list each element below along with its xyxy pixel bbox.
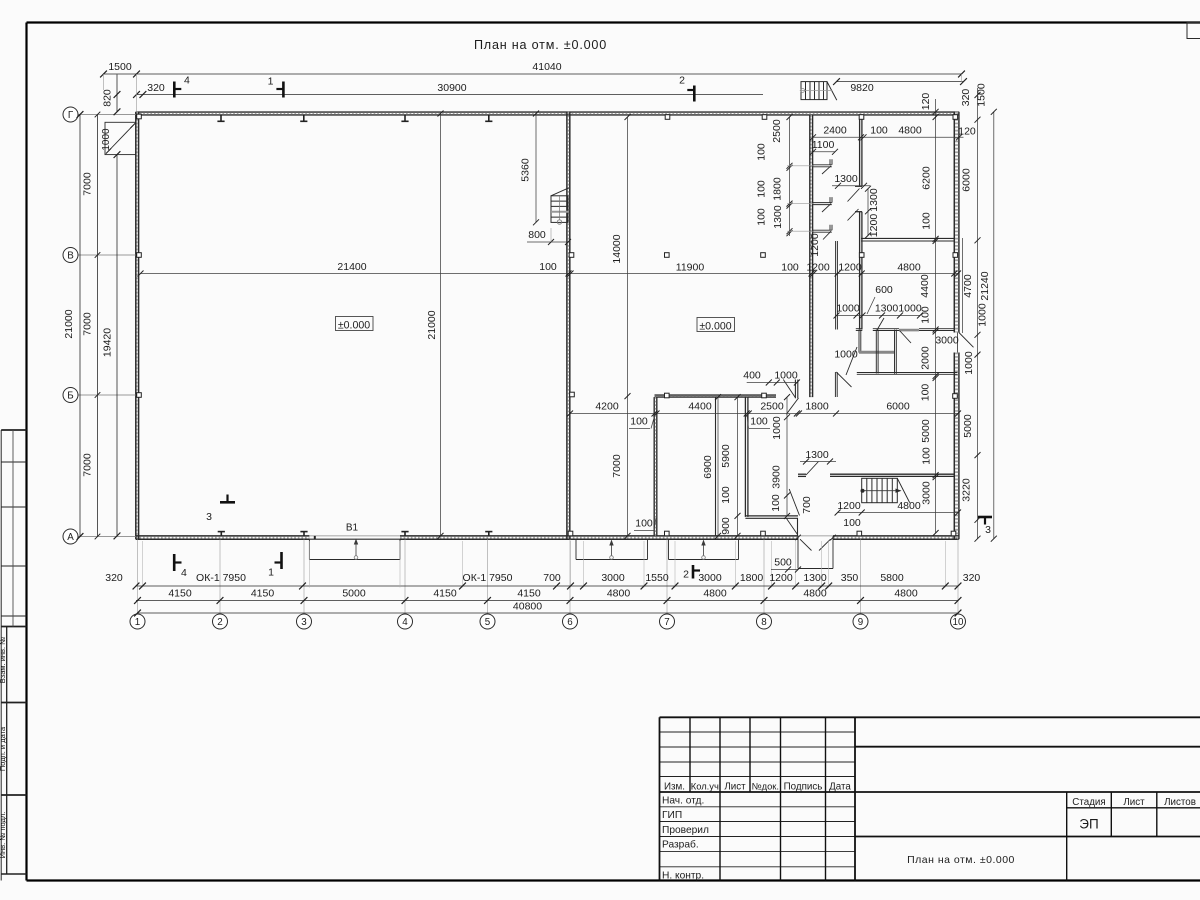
svg-text:1200: 1200 bbox=[838, 262, 862, 274]
svg-text:4: 4 bbox=[402, 617, 408, 628]
svg-text:2500: 2500 bbox=[771, 119, 783, 143]
svg-text:100: 100 bbox=[870, 124, 888, 136]
svg-text:6000: 6000 bbox=[886, 401, 910, 413]
svg-text:1200: 1200 bbox=[837, 500, 861, 512]
svg-text:100: 100 bbox=[781, 262, 799, 274]
svg-text:1000: 1000 bbox=[977, 303, 989, 327]
svg-text:Подпись: Подпись bbox=[784, 781, 823, 792]
svg-text:Дата: Дата bbox=[829, 781, 851, 792]
svg-text:4700: 4700 bbox=[962, 274, 974, 298]
svg-text:6000: 6000 bbox=[961, 168, 973, 192]
svg-text:3900: 3900 bbox=[771, 465, 783, 489]
svg-text:11900: 11900 bbox=[676, 262, 705, 274]
svg-text:1300: 1300 bbox=[803, 572, 827, 584]
svg-text:3220: 3220 bbox=[961, 478, 973, 502]
svg-text:320: 320 bbox=[960, 89, 972, 107]
svg-text:4800: 4800 bbox=[894, 588, 918, 600]
svg-text:ГИП: ГИП bbox=[662, 810, 682, 821]
svg-text:1300: 1300 bbox=[834, 173, 858, 185]
svg-text:Листов: Листов bbox=[1164, 797, 1196, 808]
svg-text:Взам. инв. №: Взам. инв. № bbox=[0, 637, 7, 683]
svg-text:3: 3 bbox=[301, 617, 307, 628]
svg-text:100: 100 bbox=[920, 384, 932, 402]
svg-text:План на отм. ±0.000: План на отм. ±0.000 bbox=[907, 854, 1015, 866]
svg-text:4: 4 bbox=[184, 75, 190, 87]
svg-text:Нач. отд.: Нач. отд. bbox=[662, 796, 704, 807]
svg-text:320: 320 bbox=[963, 572, 981, 584]
svg-text:2: 2 bbox=[683, 569, 689, 581]
svg-text:1000: 1000 bbox=[963, 351, 975, 375]
svg-text:100: 100 bbox=[921, 212, 933, 230]
svg-text:В: В bbox=[67, 251, 74, 262]
svg-text:1200: 1200 bbox=[769, 572, 793, 584]
svg-text:10: 10 bbox=[953, 617, 964, 628]
svg-text:1300: 1300 bbox=[805, 449, 829, 461]
svg-text:3: 3 bbox=[985, 524, 991, 536]
svg-text:Разраб.: Разраб. bbox=[662, 839, 699, 851]
svg-text:8: 8 bbox=[761, 617, 767, 628]
svg-text:320: 320 bbox=[105, 572, 123, 584]
svg-text:4400: 4400 bbox=[688, 401, 712, 413]
svg-text:4800: 4800 bbox=[898, 124, 922, 136]
svg-text:320: 320 bbox=[147, 82, 165, 94]
svg-text:4800: 4800 bbox=[897, 262, 921, 274]
svg-text:4800: 4800 bbox=[897, 500, 921, 512]
svg-text:100: 100 bbox=[921, 447, 933, 465]
svg-text:100: 100 bbox=[756, 208, 768, 226]
svg-text:19420: 19420 bbox=[102, 328, 114, 357]
svg-text:1800: 1800 bbox=[805, 401, 829, 413]
svg-text:820: 820 bbox=[102, 89, 114, 107]
svg-text:100: 100 bbox=[843, 517, 861, 529]
svg-text:21000: 21000 bbox=[63, 309, 75, 338]
svg-text:400: 400 bbox=[743, 370, 761, 382]
svg-text:21400: 21400 bbox=[337, 261, 366, 273]
svg-text:4150: 4150 bbox=[433, 588, 457, 600]
svg-text:2: 2 bbox=[679, 75, 685, 87]
svg-text:7000: 7000 bbox=[611, 454, 623, 478]
svg-text:1: 1 bbox=[135, 617, 140, 628]
svg-text:14000: 14000 bbox=[611, 234, 623, 263]
svg-text:1500: 1500 bbox=[976, 83, 988, 107]
svg-text:Стадия: Стадия bbox=[1072, 797, 1105, 808]
svg-text:4400: 4400 bbox=[919, 274, 931, 298]
svg-text:6: 6 bbox=[567, 617, 573, 628]
svg-text:500: 500 bbox=[774, 557, 792, 569]
svg-text:ОК-1 7950: ОК-1 7950 bbox=[196, 572, 246, 584]
svg-text:7000: 7000 bbox=[82, 453, 94, 477]
svg-text:120: 120 bbox=[920, 93, 932, 111]
svg-text:1000: 1000 bbox=[101, 128, 112, 151]
svg-text:В1: В1 bbox=[346, 523, 359, 534]
svg-text:Изм.: Изм. bbox=[664, 781, 685, 792]
svg-text:7000: 7000 bbox=[82, 312, 94, 336]
svg-text:4800: 4800 bbox=[703, 588, 727, 600]
svg-text:Лист: Лист bbox=[1123, 797, 1145, 808]
svg-text:4150: 4150 bbox=[168, 588, 192, 600]
svg-text:5000: 5000 bbox=[342, 588, 366, 600]
svg-text:1000: 1000 bbox=[898, 303, 922, 315]
svg-text:100: 100 bbox=[635, 518, 653, 530]
svg-text:№док.: №док. bbox=[752, 780, 779, 791]
svg-text:План на отм. ±0.000: План на отм. ±0.000 bbox=[474, 38, 607, 52]
svg-text:1: 1 bbox=[268, 567, 274, 579]
svg-text:5: 5 bbox=[485, 617, 491, 628]
svg-text:100: 100 bbox=[770, 494, 782, 512]
svg-text:Г: Г bbox=[68, 110, 74, 121]
svg-text:1100: 1100 bbox=[812, 139, 835, 151]
svg-text:1200: 1200 bbox=[809, 233, 821, 257]
svg-text:1: 1 bbox=[268, 76, 274, 88]
svg-text:3000: 3000 bbox=[698, 572, 722, 584]
svg-text:120: 120 bbox=[958, 125, 976, 137]
svg-text:ОК-1 7950: ОК-1 7950 bbox=[463, 572, 513, 584]
svg-text:4150: 4150 bbox=[517, 588, 541, 600]
svg-text:5000: 5000 bbox=[920, 419, 932, 443]
svg-text:Проверил: Проверил bbox=[662, 825, 709, 836]
svg-text:700: 700 bbox=[543, 572, 561, 584]
svg-text:1500: 1500 bbox=[108, 61, 132, 73]
svg-text:1300: 1300 bbox=[868, 188, 880, 212]
svg-text:4150: 4150 bbox=[251, 588, 275, 600]
svg-text:800: 800 bbox=[528, 229, 546, 241]
svg-text:40800: 40800 bbox=[513, 600, 542, 612]
svg-text:4200: 4200 bbox=[595, 401, 619, 413]
svg-text:3000: 3000 bbox=[921, 481, 933, 505]
svg-text:Кол.уч: Кол.уч bbox=[691, 780, 719, 791]
svg-text:3: 3 bbox=[206, 511, 212, 523]
svg-text:100: 100 bbox=[750, 416, 768, 428]
svg-text:Инв. № подл.: Инв. № подл. bbox=[0, 812, 7, 859]
svg-text:1800: 1800 bbox=[740, 572, 764, 584]
svg-text:5000: 5000 bbox=[962, 414, 974, 438]
svg-text:1000: 1000 bbox=[836, 303, 860, 315]
svg-text:2: 2 bbox=[217, 617, 222, 628]
svg-text:9820: 9820 bbox=[850, 82, 874, 94]
svg-text:4: 4 bbox=[181, 567, 187, 579]
svg-text:1800: 1800 bbox=[772, 177, 784, 201]
svg-text:4800: 4800 bbox=[803, 588, 827, 600]
svg-text:Б: Б bbox=[67, 391, 73, 402]
svg-text:2500: 2500 bbox=[760, 401, 784, 413]
svg-text:5360: 5360 bbox=[520, 158, 532, 182]
svg-text:1550: 1550 bbox=[645, 572, 669, 584]
svg-text:Н. контр.: Н. контр. bbox=[662, 870, 704, 881]
svg-text:100: 100 bbox=[756, 180, 768, 198]
svg-text:5900: 5900 bbox=[720, 444, 732, 468]
svg-text:4800: 4800 bbox=[607, 588, 631, 600]
svg-text:6200: 6200 bbox=[921, 166, 933, 190]
svg-text:9: 9 bbox=[858, 617, 863, 628]
svg-text:ЭП: ЭП bbox=[1079, 817, 1098, 832]
svg-text:30900: 30900 bbox=[437, 82, 466, 94]
svg-text:7000: 7000 bbox=[82, 172, 94, 196]
svg-text:100: 100 bbox=[539, 261, 557, 273]
svg-text:1300: 1300 bbox=[772, 205, 784, 229]
svg-text:3000: 3000 bbox=[601, 572, 625, 584]
svg-text:1200: 1200 bbox=[806, 262, 830, 274]
svg-text:350: 350 bbox=[841, 572, 859, 584]
svg-text:А: А bbox=[67, 532, 74, 543]
svg-text:5800: 5800 bbox=[880, 572, 904, 584]
svg-text:Подп. и дата: Подп. и дата bbox=[0, 726, 7, 771]
svg-text:100: 100 bbox=[720, 486, 732, 504]
svg-text:2000: 2000 bbox=[920, 346, 932, 370]
svg-text:±0.000: ±0.000 bbox=[699, 321, 731, 333]
svg-text:±0.000: ±0.000 bbox=[338, 320, 370, 332]
svg-text:100: 100 bbox=[756, 143, 768, 161]
svg-text:3000: 3000 bbox=[935, 335, 959, 347]
svg-text:6900: 6900 bbox=[702, 455, 714, 479]
svg-text:7: 7 bbox=[664, 617, 669, 628]
svg-text:1000: 1000 bbox=[834, 349, 858, 361]
svg-text:1000: 1000 bbox=[771, 416, 783, 440]
svg-text:600: 600 bbox=[875, 284, 893, 296]
svg-text:Лист: Лист bbox=[724, 781, 746, 792]
svg-text:21000: 21000 bbox=[426, 310, 438, 339]
svg-text:100: 100 bbox=[630, 416, 648, 428]
svg-text:1200: 1200 bbox=[868, 214, 880, 238]
svg-text:41040: 41040 bbox=[532, 61, 561, 73]
svg-text:1000: 1000 bbox=[774, 370, 798, 382]
svg-text:2400: 2400 bbox=[823, 124, 847, 136]
svg-text:900: 900 bbox=[720, 517, 732, 535]
svg-text:1300: 1300 bbox=[875, 303, 899, 315]
svg-text:700: 700 bbox=[801, 496, 813, 514]
svg-text:21240: 21240 bbox=[979, 271, 991, 300]
